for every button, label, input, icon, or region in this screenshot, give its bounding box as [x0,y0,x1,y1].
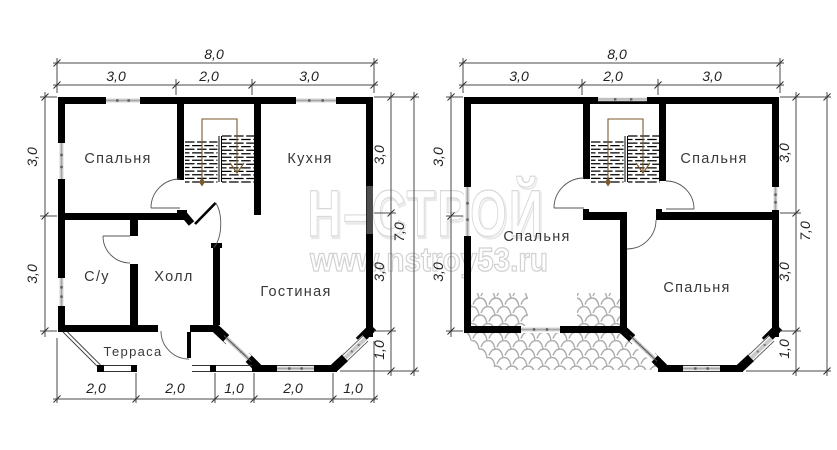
svg-text:www.nstroy53.ru: www.nstroy53.ru [309,242,548,279]
svg-text:3,0: 3,0 [24,147,40,167]
svg-text:2,0: 2,0 [602,68,623,84]
svg-text:3,0: 3,0 [299,68,319,84]
svg-text:Терраса: Терраса [104,344,163,359]
svg-text:8,0: 8,0 [204,46,224,62]
svg-text:1,0: 1,0 [776,339,792,359]
svg-text:7,0: 7,0 [391,222,407,242]
svg-text:Холл: Холл [154,269,193,285]
svg-text:3,0: 3,0 [106,68,126,84]
svg-text:1,0: 1,0 [371,340,387,360]
svg-text:Спальня: Спальня [680,151,747,167]
svg-text:3,0: 3,0 [776,262,792,282]
svg-text:2,0: 2,0 [85,380,106,396]
svg-text:Спальня: Спальня [663,280,730,296]
svg-text:1,0: 1,0 [343,380,363,396]
svg-text:3,0: 3,0 [430,262,446,282]
svg-text:7,0: 7,0 [797,221,813,241]
svg-text:3,0: 3,0 [371,262,387,282]
svg-text:3,0: 3,0 [24,264,40,284]
svg-text:Гостиная: Гостиная [260,284,331,300]
svg-text:3,0: 3,0 [371,145,387,165]
svg-text:2,0: 2,0 [164,380,185,396]
svg-text:3,0: 3,0 [776,143,792,163]
svg-text:3,0: 3,0 [702,68,722,84]
svg-text:1,0: 1,0 [224,380,244,396]
svg-text:8,0: 8,0 [607,46,627,62]
svg-text:2,0: 2,0 [282,380,303,396]
svg-text:Спальня: Спальня [503,229,570,245]
svg-text:2,0: 2,0 [198,68,219,84]
svg-text:Кухня: Кухня [287,151,332,167]
svg-text:3,0: 3,0 [509,68,529,84]
svg-text:3,0: 3,0 [430,147,446,167]
svg-text:С/у: С/у [84,269,110,285]
svg-text:Спальня: Спальня [84,151,151,167]
